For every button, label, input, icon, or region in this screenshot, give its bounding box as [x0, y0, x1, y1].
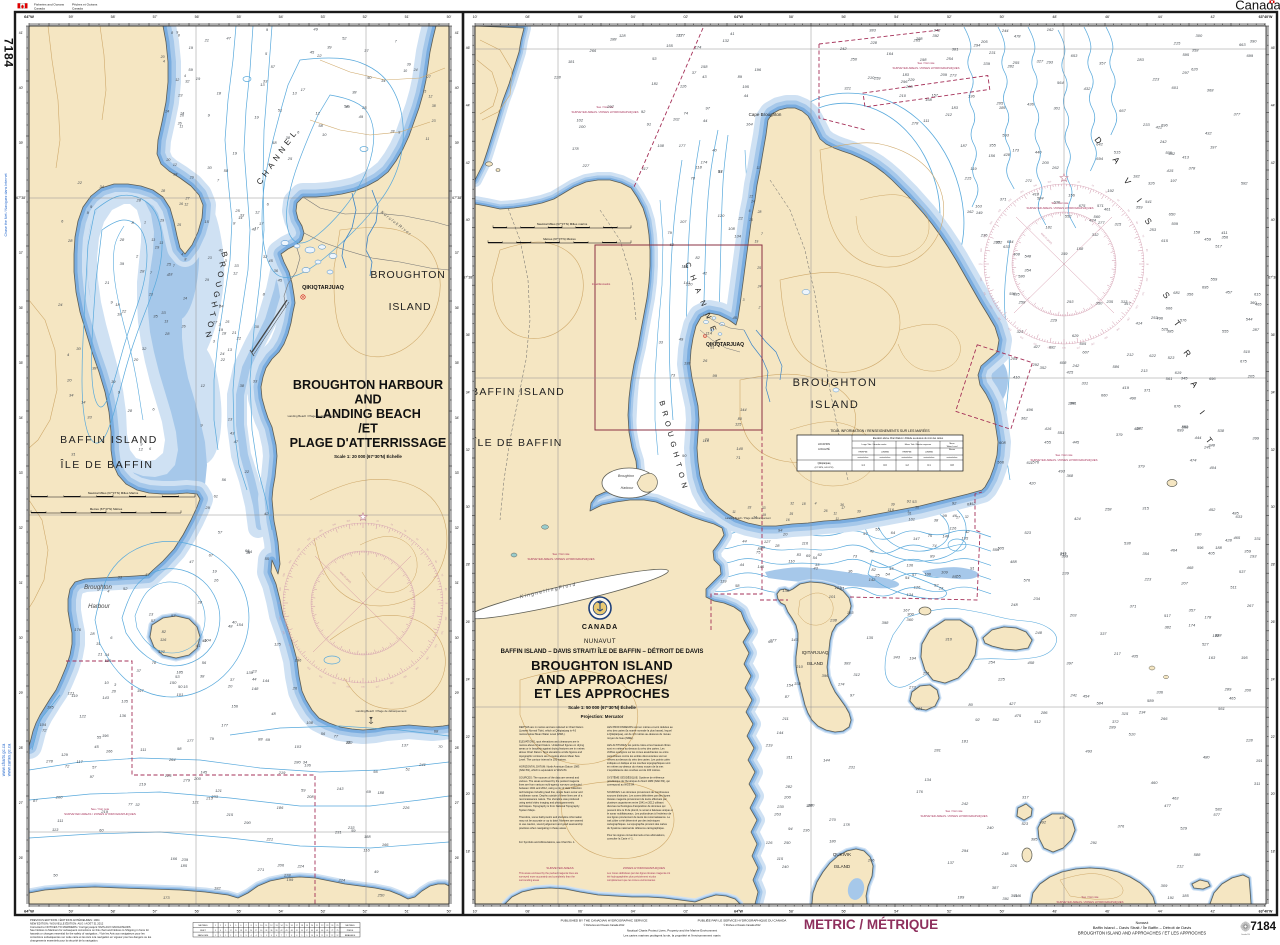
svg-text:310: 310 [945, 636, 952, 641]
svg-text:36: 36 [270, 930, 272, 932]
svg-text:9: 9 [256, 925, 257, 927]
svg-text:18': 18' [466, 850, 471, 854]
svg-text:200: 200 [1041, 160, 1049, 165]
svg-text:667: 667 [1119, 108, 1126, 113]
svg-text:231: 231 [847, 765, 855, 770]
svg-text:144: 144 [777, 730, 784, 735]
svg-text:174: 174 [838, 682, 845, 687]
svg-text:327: 327 [1037, 58, 1044, 63]
svg-text:168: 168 [925, 97, 932, 102]
svg-text:36': 36' [19, 306, 24, 310]
svg-text:72: 72 [331, 930, 333, 932]
svg-text:242: 242 [839, 46, 847, 51]
svg-text:69: 69 [366, 789, 371, 794]
svg-text:537: 537 [1239, 569, 1246, 574]
svg-text:223: 223 [1152, 76, 1160, 81]
svg-text:Projection: Mercator: Projection: Mercator [581, 714, 624, 719]
svg-text:44: 44 [742, 538, 747, 543]
svg-text:See / Voir note: See / Voir note [1081, 895, 1099, 899]
svg-text:25: 25 [756, 266, 761, 270]
svg-text:Cape Broughton: Cape Broughton [749, 112, 782, 117]
svg-text:DEPTHS are in metres and are r: DEPTHS are in metres and are reduced to … [519, 725, 583, 729]
svg-text:38: 38 [432, 104, 436, 108]
svg-text:424: 424 [1074, 516, 1081, 521]
svg-text:48': 48' [1052, 15, 1057, 19]
svg-text:59: 59 [188, 67, 193, 72]
svg-text:metres/mètres: metres/mètres [880, 456, 891, 459]
svg-text:19: 19 [762, 513, 766, 517]
svg-text:188: 188 [610, 37, 617, 42]
svg-text:LES PROFONDEURS sont en mètres: LES PROFONDEURS sont en mètres et sont r… [607, 725, 673, 729]
svg-text:34: 34 [381, 78, 386, 83]
svg-text:136: 136 [119, 713, 126, 718]
svg-text:33: 33 [253, 379, 258, 384]
svg-text:138: 138 [684, 360, 691, 365]
svg-text:248: 248 [1034, 630, 1042, 635]
svg-text:242: 242 [933, 28, 941, 33]
svg-text:areas or in brackets against d: areas or in brackets against drying feat… [519, 747, 585, 751]
svg-text:188: 188 [364, 834, 371, 839]
svg-text:195: 195 [742, 84, 749, 89]
svg-text:331: 331 [1254, 536, 1261, 541]
svg-text:229: 229 [907, 77, 915, 82]
svg-text:559: 559 [1211, 276, 1218, 281]
svg-text:383: 383 [844, 661, 851, 666]
svg-text:39: 39 [857, 510, 861, 514]
svg-text:359: 359 [1136, 204, 1143, 209]
svg-text:64°W: 64°W [734, 910, 743, 914]
svg-text:14: 14 [238, 215, 243, 220]
svg-text:101: 101 [829, 594, 836, 599]
svg-text:271: 271 [257, 867, 265, 872]
svg-text:642: 642 [1096, 142, 1103, 147]
svg-text:582: 582 [1215, 807, 1222, 812]
svg-text:150: 150 [170, 680, 177, 685]
svg-text:39: 39 [111, 379, 116, 384]
svg-text:46: 46 [952, 513, 957, 518]
svg-text:134: 134 [734, 233, 741, 238]
svg-text:various. The areas enclosed by: various. The areas enclosed by the pecke… [519, 779, 580, 783]
svg-text:432: 432 [1205, 130, 1212, 135]
svg-text:108: 108 [657, 143, 664, 148]
svg-text:186: 186 [277, 805, 284, 810]
svg-text:266: 266 [1160, 716, 1168, 721]
svg-text:36': 36' [1271, 333, 1276, 337]
svg-text:185: 185 [180, 863, 187, 868]
svg-text:metres above Chart Datum. Unde: metres above Chart Datum. Underlined fig… [519, 743, 585, 747]
svg-text:08': 08' [525, 15, 530, 19]
svg-text:50: 50 [367, 75, 372, 80]
svg-text:Pour les signes conventionnels: Pour les signes conventionnels et les ab… [607, 833, 665, 837]
svg-text:44': 44' [466, 103, 471, 107]
svg-text:23: 23 [251, 669, 257, 674]
svg-text:601: 601 [1172, 85, 1179, 90]
svg-text:254: 254 [987, 660, 995, 665]
svg-text:48: 48 [291, 930, 293, 932]
svg-text:indiqués en italique et les co: indiqués en italique et les courbes topo… [607, 761, 671, 765]
svg-text:3: 3 [240, 935, 241, 937]
svg-text:en mètres au-dessus du niveau: en mètres au-dessus du niveau moyen de l… [607, 765, 664, 769]
svg-text:51': 51' [405, 910, 410, 914]
svg-text:212: 212 [1126, 352, 1134, 357]
svg-text:379: 379 [1138, 464, 1145, 469]
svg-text:13: 13 [292, 91, 297, 96]
svg-text:241: 241 [1059, 550, 1067, 555]
svg-text:355: 355 [989, 142, 996, 147]
svg-text:510: 510 [1243, 349, 1250, 354]
svg-text:metres below Mean Water Level: metres below Mean Water Level (MWL). [519, 732, 566, 736]
svg-text:49: 49 [359, 114, 364, 119]
svg-text:371: 371 [1000, 196, 1007, 201]
svg-text:350: 350 [1096, 301, 1103, 306]
svg-text:544: 544 [1246, 317, 1253, 322]
svg-text:19: 19 [155, 244, 160, 249]
svg-text:356: 356 [1221, 235, 1228, 240]
svg-text:32': 32' [466, 448, 471, 452]
svg-text:23: 23 [177, 92, 183, 97]
svg-text:280: 280 [807, 802, 815, 807]
svg-text:457: 457 [1225, 289, 1232, 294]
svg-text:12: 12 [201, 383, 206, 388]
svg-text:32': 32' [455, 526, 460, 530]
svg-text:multibeam sonar. Depths outsid: multibeam sonar. Depths outside of these… [519, 793, 583, 797]
svg-text:282: 282 [1180, 424, 1188, 429]
svg-text:METRES: METRES [198, 925, 208, 927]
svg-text:137: 137 [402, 742, 409, 747]
svg-text:92: 92 [975, 717, 980, 722]
svg-text:174: 174 [701, 160, 708, 165]
svg-text:561: 561 [1218, 706, 1225, 711]
svg-text:56: 56 [222, 477, 227, 482]
svg-text:605: 605 [1080, 341, 1087, 346]
svg-text:515: 515 [1114, 150, 1121, 155]
svg-text:29': 29' [455, 691, 460, 695]
svg-text:695: 695 [1202, 285, 1209, 290]
svg-text:79: 79 [667, 230, 672, 235]
svg-text:sont en mètres au-dessus du zé: sont en mètres au-dessus du zéro des car… [607, 747, 665, 751]
svg-text:39': 39' [19, 141, 24, 145]
svg-text:136: 136 [304, 762, 311, 767]
svg-text:complètement que les zones env: complètement que les zones environnantes [607, 879, 656, 882]
svg-text:4: 4 [230, 925, 231, 927]
svg-text:08': 08' [525, 910, 530, 914]
svg-text:Large Tide / Grande marée: Large Tide / Grande marée [862, 443, 888, 446]
svg-text:230: 230 [776, 804, 784, 809]
svg-text:7: 7 [286, 935, 287, 937]
svg-text:40: 40 [712, 148, 717, 153]
svg-text:404: 404 [1210, 465, 1217, 470]
svg-text:28: 28 [89, 631, 95, 636]
svg-text:21: 21 [204, 38, 209, 43]
svg-text:tiretées magenta proviennent d: tiretées magenta proviennent de levés ef… [607, 797, 667, 801]
svg-text:360: 360 [907, 617, 914, 622]
svg-text:Broughton: Broughton [618, 474, 634, 478]
svg-text:126: 126 [680, 83, 687, 88]
svg-text:541: 541 [1145, 199, 1152, 204]
svg-text:493: 493 [1058, 469, 1065, 474]
svg-text:27': 27' [455, 801, 460, 805]
svg-text:04': 04' [631, 910, 636, 914]
svg-text:40': 40' [466, 218, 471, 222]
svg-text:385: 385 [1031, 837, 1038, 842]
svg-text:le sonar multifaisceaux. Les p: le sonar multifaisceaux. Les profondeurs… [607, 811, 672, 815]
svg-text:ISLAND: ISLAND [834, 864, 851, 869]
svg-text:7: 7 [245, 925, 246, 927]
svg-text:425: 425 [1067, 370, 1074, 375]
svg-text:523: 523 [1168, 355, 1175, 360]
svg-text:46': 46' [466, 46, 471, 50]
svg-text:254: 254 [945, 56, 953, 61]
svg-text:41: 41 [196, 643, 200, 648]
svg-text:228: 228 [869, 40, 877, 45]
svg-text:512: 512 [1034, 719, 1041, 724]
svg-text:32: 32 [965, 515, 969, 519]
svg-text:55': 55' [237, 15, 242, 19]
svg-text:580: 580 [1018, 274, 1025, 279]
svg-text:219: 219 [278, 770, 286, 775]
svg-text:571: 571 [1097, 203, 1104, 208]
svg-text:176: 176 [916, 789, 923, 794]
svg-text:34: 34 [69, 392, 74, 397]
svg-text:33: 33 [161, 310, 166, 315]
svg-text:317: 317 [1022, 795, 1029, 800]
svg-text:287: 287 [1251, 327, 1259, 332]
svg-text:398: 398 [882, 620, 889, 625]
svg-text:552: 552 [1065, 214, 1072, 219]
svg-text:24: 24 [250, 930, 252, 932]
svg-text:91: 91 [907, 499, 911, 504]
svg-text:415: 415 [1167, 168, 1174, 173]
svg-text:181: 181 [962, 739, 969, 744]
svg-text:258: 258 [1018, 300, 1026, 305]
svg-text:158: 158 [1193, 229, 1200, 234]
svg-text:116: 116 [802, 541, 809, 546]
svg-text:29': 29' [19, 691, 24, 695]
svg-text:16: 16 [291, 925, 293, 927]
svg-text:163: 163 [1209, 655, 1216, 660]
svg-text:39: 39 [407, 62, 411, 66]
svg-text:5: 5 [261, 935, 262, 937]
svg-text:291: 291 [1089, 840, 1097, 845]
svg-text:SURVEYED AREAS / ZONES HYDROGR: SURVEYED AREAS / ZONES HYDROGRAPHIQUES [1057, 900, 1124, 904]
svg-text:52': 52' [363, 15, 368, 19]
svg-text:(Lowest Normal Tide), which at: (Lowest Normal Tide), which at Qikiqtarj… [519, 729, 577, 733]
svg-text:11: 11 [426, 137, 430, 141]
svg-text:225: 225 [997, 676, 1005, 681]
svg-text:111: 111 [923, 118, 929, 123]
svg-text:56': 56' [842, 910, 847, 914]
svg-text:42: 42 [281, 930, 283, 932]
svg-text:10: 10 [260, 925, 262, 927]
svg-text:20: 20 [782, 532, 788, 537]
svg-text:chiffres soulignés sur les zon: chiffres soulignés sur les zones assécha… [607, 750, 669, 754]
svg-text:LOCALITÉ: LOCALITÉ [818, 448, 830, 451]
svg-text:293: 293 [1066, 299, 1074, 304]
svg-text:25: 25 [176, 223, 181, 227]
svg-text:94: 94 [778, 528, 783, 533]
svg-text:206: 206 [276, 862, 284, 867]
svg-text:213: 213 [1140, 368, 1148, 373]
svg-text:mètres au-dessus du zéro des c: mètres au-dessus du zéro des cartes. Les… [607, 757, 671, 761]
svg-text:9: 9 [398, 131, 400, 135]
svg-text:3: 3 [225, 925, 226, 927]
svg-text:plusieurs organismes entre 194: plusieurs organismes entre 1941 et 2012 … [607, 801, 664, 805]
svg-text:11: 11 [756, 166, 760, 170]
svg-text:33: 33 [265, 930, 267, 932]
svg-text:54': 54' [894, 910, 899, 914]
svg-text:326: 326 [1148, 181, 1155, 186]
svg-text:125: 125 [274, 641, 281, 646]
svg-text:44: 44 [744, 93, 749, 98]
svg-text:87: 87 [785, 694, 790, 699]
svg-text:52': 52' [947, 15, 952, 19]
svg-text:493: 493 [1085, 749, 1092, 754]
svg-text:42': 42' [1210, 15, 1215, 19]
svg-text:40': 40' [455, 86, 460, 90]
svg-text:13: 13 [228, 417, 233, 422]
svg-text:166: 166 [170, 856, 177, 861]
svg-text:13: 13 [260, 82, 265, 87]
svg-text:159: 159 [1061, 251, 1068, 256]
svg-text:176: 176 [74, 627, 81, 632]
svg-text:397: 397 [1066, 660, 1073, 665]
svg-text:28': 28' [19, 746, 24, 750]
svg-text:127: 127 [764, 539, 771, 544]
svg-text:41': 41' [455, 31, 460, 35]
svg-text:16: 16 [786, 518, 790, 522]
svg-text:405: 405 [1208, 550, 1215, 555]
svg-text:197: 197 [1210, 145, 1217, 150]
svg-text:18: 18 [168, 272, 172, 276]
svg-text:205: 205 [980, 39, 988, 44]
svg-text:461: 461 [1104, 206, 1111, 211]
svg-text:424: 424 [1089, 218, 1096, 223]
svg-text:57': 57' [153, 15, 158, 19]
svg-text:50': 50' [447, 15, 452, 19]
svg-text:67°38': 67°38' [452, 196, 462, 200]
svg-text:24: 24 [219, 351, 225, 356]
svg-text:517: 517 [1215, 243, 1222, 248]
svg-text:13: 13 [149, 612, 154, 617]
svg-text:210: 210 [898, 93, 906, 98]
svg-text:452: 452 [1209, 507, 1216, 512]
svg-text:228: 228 [1245, 738, 1253, 743]
svg-text:practices when navigating in t: practices when navigating in these areas… [519, 826, 567, 830]
svg-text:177: 177 [187, 738, 194, 743]
svg-text:608: 608 [1060, 360, 1067, 365]
svg-text:10: 10 [104, 680, 109, 685]
svg-text:629: 629 [1072, 333, 1079, 338]
svg-text:Baffin Island – Davis Strait /: Baffin Island – Davis Strait / Île Baffi… [1093, 925, 1192, 930]
svg-text:120: 120 [718, 213, 725, 218]
svg-text:44': 44' [1158, 910, 1163, 914]
svg-text:9: 9 [225, 930, 226, 932]
svg-text:42: 42 [219, 247, 224, 252]
svg-text:28: 28 [160, 189, 165, 193]
svg-text:59: 59 [301, 787, 306, 792]
svg-text:LLW/BMé: LLW/BMé [925, 452, 933, 454]
svg-text:200: 200 [1243, 687, 1251, 692]
svg-text:183: 183 [847, 610, 854, 615]
svg-text:586: 586 [1113, 364, 1120, 369]
svg-text:1: 1 [220, 935, 221, 937]
svg-text:metres/mètres: metres/mètres [858, 456, 869, 459]
svg-text:357: 357 [1189, 608, 1196, 613]
svg-text:37: 37 [692, 70, 697, 75]
svg-text:551: 551 [1058, 430, 1065, 435]
svg-text:20: 20 [748, 218, 753, 222]
svg-text:79: 79 [209, 736, 214, 741]
svg-text:Elevation above Chart Datum /: Elevation above Chart Datum / Altitude a… [873, 437, 944, 440]
svg-text:Nautical Miles (67°37'N) Mille: Nautical Miles (67°37'N) Milles marins [537, 222, 588, 226]
svg-text:187: 187 [960, 143, 967, 148]
svg-text:294: 294 [961, 848, 969, 853]
svg-text:576: 576 [1180, 317, 1187, 322]
svg-text:396: 396 [822, 673, 829, 678]
svg-text:45: 45 [94, 744, 99, 749]
svg-text:54': 54' [279, 15, 284, 19]
svg-text:between 1941 and 2012, using a: between 1941 and 2012, using a mix of da… [519, 786, 582, 790]
svg-text:156: 156 [1068, 192, 1075, 197]
svg-text:40: 40 [232, 620, 237, 625]
svg-text:54': 54' [894, 15, 899, 19]
svg-text:For Symbols and Abbreviations,: For Symbols and Abbreviations, see Chart… [519, 840, 576, 844]
svg-text:49: 49 [679, 337, 684, 342]
svg-text:185: 185 [47, 704, 54, 709]
svg-text:343: 343 [893, 654, 900, 659]
svg-text:25: 25 [224, 320, 229, 324]
svg-text:607: 607 [1082, 350, 1089, 355]
svg-text:10': 10' [473, 910, 478, 914]
svg-text:04': 04' [631, 15, 636, 19]
svg-text:101: 101 [908, 517, 915, 522]
svg-text:58: 58 [224, 168, 229, 173]
svg-text:125: 125 [104, 658, 111, 663]
svg-text:Qikiqtarjuaq: Qikiqtarjuaq [818, 462, 831, 465]
svg-text:219: 219 [765, 742, 773, 747]
svg-text:158: 158 [1077, 246, 1084, 251]
svg-text:See / Voir note: See / Voir note [1055, 453, 1073, 457]
svg-text:435: 435 [1131, 653, 1138, 658]
svg-text:336: 336 [1156, 689, 1163, 694]
svg-text:164: 164 [746, 122, 753, 127]
svg-text:101: 101 [177, 692, 184, 697]
svg-text:42': 42' [466, 161, 471, 165]
svg-text:See / Voir note: See / Voir note [552, 552, 570, 556]
svg-text:488: 488 [1010, 559, 1017, 564]
svg-text:608: 608 [999, 440, 1006, 445]
svg-text:422: 422 [1156, 124, 1163, 129]
svg-text:25: 25 [874, 573, 880, 578]
svg-text:géodésique de l'Amérique du No: géodésique de l'Amérique du Nord 1983 (N… [607, 779, 670, 783]
svg-text:49: 49 [345, 104, 350, 109]
svg-text:33: 33 [762, 506, 766, 510]
svg-text:BAFFIN ISLAND: BAFFIN ISLAND [60, 434, 158, 446]
svg-text:surrounding areas: surrounding areas [519, 879, 540, 882]
svg-text:2: 2 [230, 935, 231, 937]
svg-text:465: 465 [1255, 302, 1262, 307]
svg-text:13: 13 [164, 319, 168, 323]
svg-text:22: 22 [121, 309, 127, 314]
svg-text:51: 51 [278, 108, 282, 113]
svg-text:47: 47 [189, 559, 194, 564]
svg-text:46': 46' [1105, 15, 1110, 19]
svg-text:21: 21 [97, 652, 102, 657]
svg-text:191: 191 [1212, 633, 1219, 638]
svg-text:QIKIQTARJUAQ: QIKIQTARJUAQ [302, 285, 344, 291]
svg-text:34': 34' [1271, 390, 1276, 394]
svg-text:22: 22 [244, 469, 250, 474]
